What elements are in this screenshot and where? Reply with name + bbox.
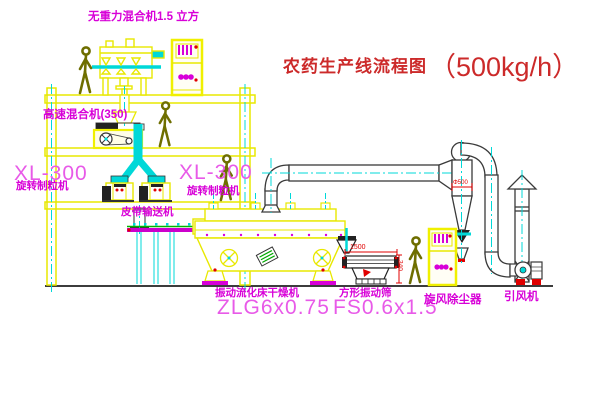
- granulator-left: [102, 176, 134, 201]
- worker-figure-mid: [160, 102, 171, 146]
- dimension-sieve-height: 340: [396, 260, 403, 271]
- granulator-right: [139, 176, 172, 201]
- label-granulator-right-model: XL-300: [179, 162, 253, 183]
- worker-figure-top: [80, 47, 91, 93]
- belt-conveyor: [127, 223, 197, 284]
- label-high-speed-mixer: 高速混合机(350): [43, 110, 127, 122]
- cyclone-dust-collector: [452, 143, 511, 278]
- label-sieve-model: FS0.6x1.5: [333, 297, 438, 318]
- dimension-sieve-length: 1500: [350, 244, 366, 251]
- title-capacity: （500kg/h）: [429, 45, 579, 84]
- label-granulator-left-name: 旋转制粒机: [16, 181, 69, 192]
- worker-figure-ground: [410, 237, 421, 283]
- label-dryer-model: ZLG6x0.75: [217, 297, 330, 318]
- dimension-cyclone-diameter: Φ500: [453, 180, 468, 186]
- title-text: 农药生产线流程图: [283, 52, 427, 77]
- label-belt-conveyor: 皮带输送机: [121, 207, 174, 218]
- gravity-free-mixer: [92, 39, 164, 95]
- cad-flow-diagram: 农药生产线流程图 （500kg/h） 无重力混合机1.5 立方 高速混合机(35…: [0, 0, 600, 403]
- control-cabinet-ground: [429, 229, 456, 285]
- label-cyclone: 旋风除尘器: [424, 295, 482, 307]
- label-granulator-right-name: 旋转制粒机: [187, 186, 240, 197]
- label-fan: 引风机: [504, 292, 539, 304]
- control-cabinet-top: [172, 40, 202, 95]
- square-vibrating-sieve: [337, 228, 402, 284]
- diagram-title: 农药生产线流程图 （500kg/h）: [283, 45, 579, 84]
- label-gravity-free-mixer: 无重力混合机1.5 立方: [88, 12, 199, 24]
